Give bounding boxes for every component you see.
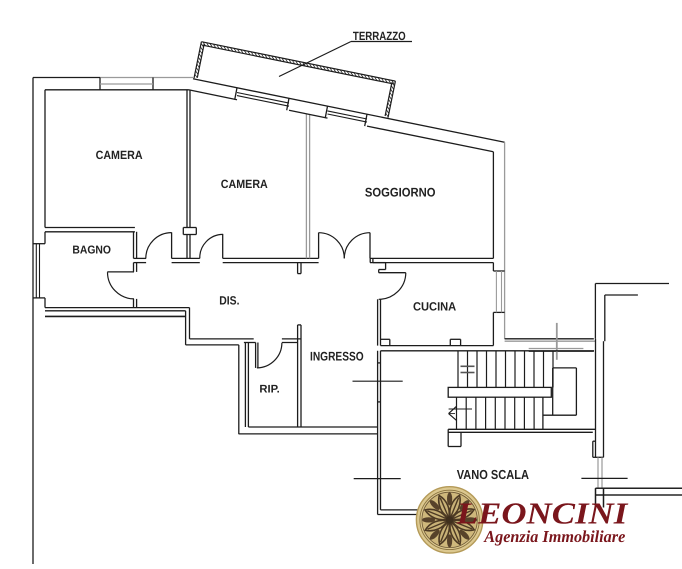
svg-text:BAGNO: BAGNO xyxy=(72,245,111,257)
svg-text:VANO SCALA: VANO SCALA xyxy=(457,467,530,482)
svg-text:TERRAZZO: TERRAZZO xyxy=(353,29,406,43)
svg-text:RIP.: RIP. xyxy=(259,383,279,395)
svg-text:DIS.: DIS. xyxy=(219,293,239,307)
svg-text:CAMERA: CAMERA xyxy=(96,148,143,162)
svg-text:CUCINA: CUCINA xyxy=(413,299,457,313)
svg-text:CAMERA: CAMERA xyxy=(221,177,268,191)
svg-text:INGRESSO: INGRESSO xyxy=(310,349,364,363)
svg-text:LEONCINI: LEONCINI xyxy=(456,497,629,531)
svg-text:SOGGIORNO: SOGGIORNO xyxy=(365,186,436,200)
svg-text:Agenzia Immobiliare: Agenzia Immobiliare xyxy=(483,527,625,546)
